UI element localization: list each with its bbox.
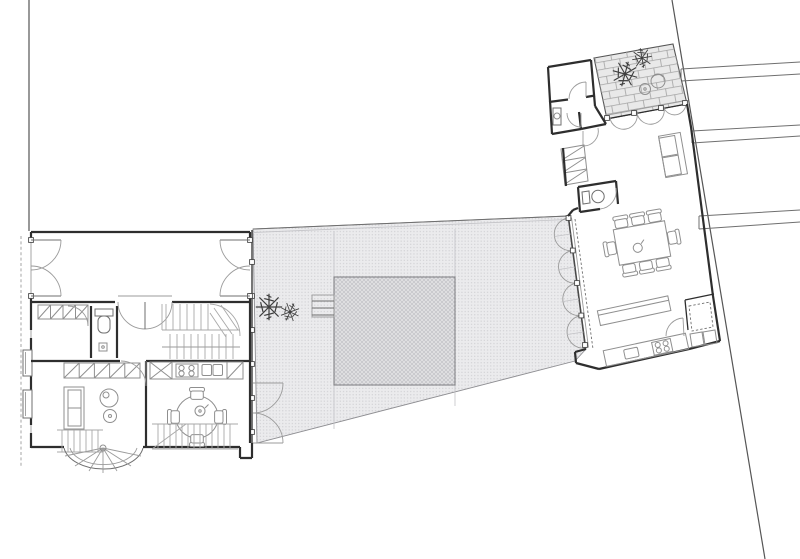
- neighbor-party-wall: [692, 125, 800, 143]
- property-line-right: [672, 0, 765, 559]
- brick-paving: [580, 30, 700, 130]
- courtyard-central-square: [334, 277, 455, 385]
- bay-window: [23, 350, 32, 376]
- terrace: [580, 30, 700, 130]
- toilet: [582, 190, 604, 204]
- door-arc: [666, 318, 684, 336]
- wardrobe-hatched: [64, 363, 140, 378]
- stove-4-burner: [176, 364, 198, 377]
- sofa: [64, 387, 84, 429]
- sofa: [659, 132, 688, 177]
- teapot: [633, 243, 643, 253]
- plant-icon: [256, 294, 282, 320]
- bathroom-sink: [553, 108, 561, 125]
- floor-plan-canvas: [0, 0, 800, 559]
- sink-double: [202, 365, 223, 376]
- wardrobe-hatched: [227, 362, 243, 379]
- kitchen-counter: [603, 333, 688, 366]
- utility-room: [685, 294, 717, 347]
- stair-spiral-turret: [64, 445, 143, 473]
- dining-area: [599, 206, 685, 279]
- left-building: [23, 232, 252, 473]
- wc-room: [578, 181, 618, 212]
- kitchen-island: [597, 296, 671, 326]
- floor-plan-page: [0, 0, 800, 559]
- living-room-furniture: [64, 361, 146, 429]
- door-arc: [569, 82, 586, 99]
- wc-toilet: [95, 309, 113, 351]
- neighbor-party-wall: [699, 210, 800, 229]
- double-swing-door: [118, 296, 172, 329]
- armchair: [100, 389, 118, 407]
- french-doors-front-room: [31, 240, 250, 296]
- teapot: [195, 406, 205, 416]
- door-arc: [583, 128, 598, 146]
- stair-main: [162, 304, 240, 359]
- side-table: [104, 410, 117, 423]
- wardrobe-hatched: [38, 305, 88, 319]
- neighbor-party-wall: [681, 62, 800, 81]
- skylight-dashed: [689, 302, 713, 331]
- sink: [624, 347, 640, 359]
- wardrobe-hatched: [150, 362, 172, 379]
- bay-window: [23, 390, 32, 418]
- courtyard: [250, 216, 589, 443]
